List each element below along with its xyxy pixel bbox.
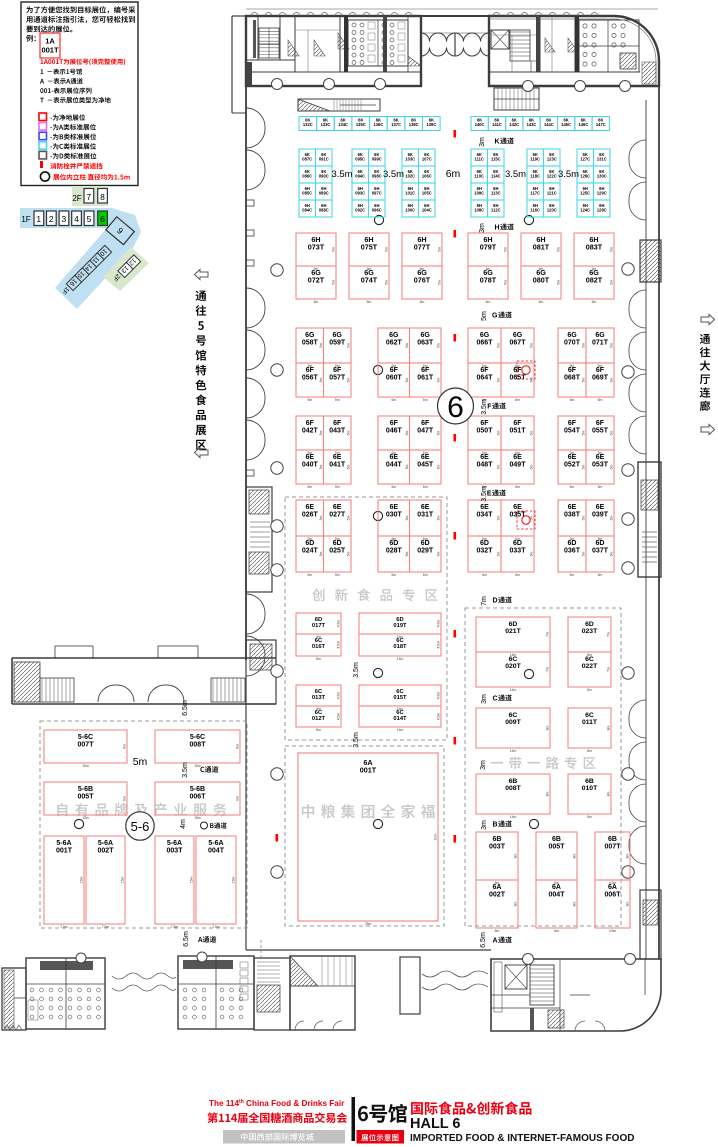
svg-text:7: 7 <box>86 192 91 202</box>
svg-text:6m: 6m <box>420 300 425 304</box>
svg-text:5m: 5m <box>405 515 409 520</box>
svg-text:034T: 034T <box>477 511 494 518</box>
svg-text:6m: 6m <box>446 168 461 180</box>
svg-text:5m: 5m <box>347 551 351 556</box>
svg-text:H: H <box>494 225 499 232</box>
svg-text:105C: 105C <box>422 190 432 195</box>
svg-text:104C: 104C <box>422 207 432 212</box>
svg-text:062T: 062T <box>386 339 403 346</box>
svg-text:118C: 118C <box>530 173 540 178</box>
svg-text:019T: 019T <box>393 623 407 629</box>
svg-text:6D: 6D <box>421 540 430 547</box>
svg-text:5m: 5m <box>610 464 614 469</box>
svg-text:044T: 044T <box>386 461 403 468</box>
svg-text:6E: 6E <box>390 504 399 511</box>
svg-text:092C: 092C <box>355 207 365 212</box>
svg-text:6m: 6m <box>539 267 544 271</box>
svg-text:15m: 15m <box>82 764 89 768</box>
svg-text:3m: 3m <box>481 694 488 704</box>
svg-text:6m: 6m <box>123 796 127 801</box>
svg-text:112C: 112C <box>491 207 501 212</box>
svg-text:6m: 6m <box>482 537 487 541</box>
svg-text:032T: 032T <box>477 547 494 554</box>
svg-text:6m: 6m <box>423 485 428 489</box>
svg-text:6F: 6F <box>421 420 430 427</box>
svg-text:6C: 6C <box>396 710 404 716</box>
svg-text:089C: 089C <box>319 190 329 195</box>
svg-text:108C: 108C <box>474 207 484 212</box>
svg-text:C: C <box>492 696 497 703</box>
svg-text:8m: 8m <box>316 728 321 732</box>
svg-text:6C: 6C <box>585 656 594 663</box>
svg-text:6D: 6D <box>333 540 342 547</box>
svg-text:014T: 014T <box>393 716 407 722</box>
svg-text:4.5m: 4.5m <box>609 929 617 933</box>
svg-text:058T: 058T <box>302 339 319 346</box>
svg-text:6m: 6m <box>515 398 520 402</box>
svg-text:6D: 6D <box>389 540 398 547</box>
svg-text:5m: 5m <box>497 515 501 520</box>
svg-text:6A: 6A <box>552 884 561 891</box>
svg-text:005T: 005T <box>549 843 566 850</box>
svg-text:7.5m: 7.5m <box>102 925 110 929</box>
svg-text:009T: 009T <box>505 719 521 726</box>
svg-text:050T: 050T <box>477 427 494 434</box>
svg-text:1A: 1A <box>45 37 55 46</box>
svg-text:6F: 6F <box>513 420 522 427</box>
svg-text:146C: 146C <box>579 122 589 127</box>
svg-text:14m: 14m <box>397 728 404 732</box>
svg-text:018T: 018T <box>393 644 407 650</box>
svg-text:5m: 5m <box>307 537 312 541</box>
svg-text:057T: 057T <box>329 374 346 381</box>
svg-text:147C: 147C <box>596 122 606 127</box>
svg-text:5m: 5m <box>405 430 409 435</box>
svg-text:6A: 6A <box>493 884 502 891</box>
svg-text:8m: 8m <box>573 901 577 906</box>
svg-text:6F: 6F <box>306 367 315 374</box>
svg-text:119C: 119C <box>530 156 540 161</box>
svg-text:5m: 5m <box>347 343 351 348</box>
svg-text:5m: 5m <box>335 573 340 577</box>
svg-text:4.5m: 4.5m <box>609 881 617 885</box>
svg-text:056T: 056T <box>302 374 319 381</box>
svg-text:6F: 6F <box>333 367 342 374</box>
svg-text:5m: 5m <box>385 280 389 285</box>
svg-text:078T: 078T <box>480 276 497 285</box>
svg-text:5: 5 <box>87 214 92 224</box>
svg-text:6m: 6m <box>314 267 319 271</box>
svg-text:5m: 5m <box>610 430 614 435</box>
svg-text:6F: 6F <box>390 367 399 374</box>
svg-text:5m: 5m <box>405 464 409 469</box>
svg-text:041T: 041T <box>329 461 346 468</box>
svg-text:4.5m: 4.5m <box>337 620 341 628</box>
svg-text:5m: 5m <box>481 311 488 321</box>
svg-text:5m: 5m <box>610 377 614 382</box>
svg-text:6G: 6G <box>480 332 490 339</box>
svg-text:132C: 132C <box>303 122 313 127</box>
svg-text:5m: 5m <box>347 377 351 382</box>
svg-text:5m: 5m <box>570 364 575 368</box>
svg-text:072T: 072T <box>308 276 325 285</box>
svg-text:094C: 094C <box>355 173 365 178</box>
svg-text:3.5m: 3.5m <box>481 486 488 502</box>
svg-text:6B: 6B <box>552 836 561 843</box>
svg-text:025T: 025T <box>329 547 346 554</box>
svg-text:5m: 5m <box>319 430 323 435</box>
svg-text:101C: 101C <box>405 190 415 195</box>
svg-text:6m: 6m <box>391 537 396 541</box>
svg-text:087C: 087C <box>302 156 312 161</box>
svg-text:5-6A: 5-6A <box>167 840 182 847</box>
svg-text:6E: 6E <box>596 454 605 461</box>
svg-text:8m: 8m <box>546 725 550 730</box>
svg-text:008T: 008T <box>505 785 521 792</box>
svg-text:5m: 5m <box>530 343 534 348</box>
svg-text:5m: 5m <box>610 551 614 556</box>
svg-text:5m: 5m <box>504 280 508 285</box>
svg-text:6D: 6D <box>305 540 314 547</box>
svg-text:5m: 5m <box>497 343 501 348</box>
svg-text:8m: 8m <box>316 657 321 661</box>
svg-text:125C: 125C <box>580 190 590 195</box>
svg-text:7m: 7m <box>546 632 550 637</box>
svg-text:5m: 5m <box>332 247 336 252</box>
svg-text:060T: 060T <box>386 374 403 381</box>
svg-text:5m: 5m <box>610 515 614 520</box>
svg-text:5m: 5m <box>437 430 441 435</box>
svg-text:129C: 129C <box>597 190 607 195</box>
svg-text:8m: 8m <box>495 929 500 933</box>
svg-text:6B: 6B <box>608 836 617 843</box>
svg-text:15m: 15m <box>232 877 236 884</box>
svg-text:6D: 6D <box>585 621 594 628</box>
svg-text:15m: 15m <box>80 877 84 884</box>
svg-text:011T: 011T <box>582 719 598 726</box>
svg-text:6E: 6E <box>480 504 489 511</box>
svg-text:5m: 5m <box>598 485 603 489</box>
svg-text:6.5m: 6.5m <box>183 931 190 947</box>
svg-text:6.5m: 6.5m <box>182 700 189 716</box>
svg-text:076T: 076T <box>414 276 431 285</box>
svg-text:109C: 109C <box>474 190 484 195</box>
svg-text:6E: 6E <box>333 454 342 461</box>
svg-text:5m: 5m <box>570 451 575 455</box>
svg-text:5m: 5m <box>332 280 336 285</box>
svg-text:3.5m: 3.5m <box>481 399 488 415</box>
svg-text:6m: 6m <box>423 398 428 402</box>
svg-text:8m: 8m <box>607 725 611 730</box>
svg-text:086C: 086C <box>302 173 312 178</box>
svg-text:5m: 5m <box>557 247 561 252</box>
svg-text:6E: 6E <box>421 454 430 461</box>
svg-text:081T: 081T <box>533 243 550 252</box>
svg-text:069T: 069T <box>592 374 609 381</box>
svg-text:B: B <box>492 822 497 829</box>
svg-text:6m: 6m <box>367 300 372 304</box>
svg-text:048T: 048T <box>477 461 494 468</box>
svg-text:6C: 6C <box>396 689 404 695</box>
svg-text:5m: 5m <box>335 398 340 402</box>
svg-text:14m: 14m <box>510 749 517 753</box>
svg-text:138C: 138C <box>409 122 419 127</box>
svg-text:5m: 5m <box>347 430 351 435</box>
svg-text:013T: 013T <box>312 695 326 701</box>
svg-text:061T: 061T <box>417 374 434 381</box>
svg-text:5-6: 5-6 <box>131 819 150 834</box>
svg-text:8m: 8m <box>626 853 630 858</box>
svg-text:131C: 131C <box>597 156 607 161</box>
svg-text:5m: 5m <box>570 573 575 577</box>
svg-text:5m: 5m <box>504 247 508 252</box>
svg-text:6E: 6E <box>421 504 430 511</box>
svg-text:6m: 6m <box>515 537 520 541</box>
svg-text:145C: 145C <box>561 122 571 127</box>
svg-text:001T: 001T <box>56 847 73 854</box>
svg-text:8m: 8m <box>626 901 630 906</box>
svg-text:012T: 012T <box>312 716 326 722</box>
svg-text:6B: 6B <box>509 778 518 785</box>
svg-text:5m: 5m <box>530 377 534 382</box>
svg-text:4.5m: 4.5m <box>337 641 341 649</box>
svg-text:5m: 5m <box>319 464 323 469</box>
svg-text:054T: 054T <box>564 427 581 434</box>
svg-text:5m: 5m <box>598 364 603 368</box>
svg-text:022T: 022T <box>582 663 598 670</box>
svg-text:14m: 14m <box>397 657 404 661</box>
svg-text:3.5m: 3.5m <box>331 169 352 180</box>
svg-text:6D: 6D <box>596 540 605 547</box>
svg-text:5m: 5m <box>335 364 340 368</box>
svg-text:6m: 6m <box>482 364 487 368</box>
svg-text:6E: 6E <box>390 454 399 461</box>
svg-text:6m: 6m <box>314 300 319 304</box>
svg-text:5m: 5m <box>437 515 441 520</box>
svg-text:030T: 030T <box>386 511 403 518</box>
svg-text:130C: 130C <box>597 173 607 178</box>
svg-text:093C: 093C <box>355 190 365 195</box>
svg-text:5m: 5m <box>610 280 614 285</box>
svg-text:6m: 6m <box>420 267 425 271</box>
svg-text:3m: 3m <box>480 760 487 770</box>
svg-text:15m: 15m <box>82 816 89 820</box>
svg-text:121C: 121C <box>547 190 557 195</box>
svg-text:5m: 5m <box>570 398 575 402</box>
svg-text:038T: 038T <box>564 511 581 518</box>
svg-text:6D: 6D <box>396 617 403 623</box>
svg-text:3.5m: 3.5m <box>353 662 360 678</box>
svg-text:5m: 5m <box>385 247 389 252</box>
svg-text:3.5m: 3.5m <box>182 762 189 778</box>
svg-text:5m: 5m <box>582 464 586 469</box>
svg-text:6G: 6G <box>389 332 399 339</box>
svg-text:5m: 5m <box>437 551 441 556</box>
svg-text:135C: 135C <box>356 122 366 127</box>
svg-text:6m: 6m <box>592 300 597 304</box>
svg-text:5-6B: 5-6B <box>78 786 93 793</box>
svg-text:5m: 5m <box>582 551 586 556</box>
svg-text:5m: 5m <box>307 398 312 402</box>
svg-text:6m: 6m <box>391 573 396 577</box>
svg-text:047T: 047T <box>417 427 434 434</box>
svg-text:6F: 6F <box>390 420 399 427</box>
svg-text:067T: 067T <box>510 339 527 346</box>
svg-text:8m: 8m <box>587 749 592 753</box>
svg-text:023T: 023T <box>582 628 598 635</box>
svg-text:049T: 049T <box>510 461 527 468</box>
svg-text:144C: 144C <box>544 122 554 127</box>
svg-text:045T: 045T <box>417 461 434 468</box>
svg-text:016T: 016T <box>312 644 326 650</box>
svg-text:040T: 040T <box>302 461 319 468</box>
svg-text:The 114th China Food & Drinks: The 114th China Food & Drinks Fair <box>209 1099 345 1108</box>
svg-text:120C: 120C <box>547 207 557 212</box>
svg-text:037T: 037T <box>592 547 609 554</box>
svg-text:075T: 075T <box>361 243 378 252</box>
svg-text:D: D <box>492 598 497 605</box>
svg-text:114C: 114C <box>491 173 501 178</box>
svg-text:7m: 7m <box>607 632 611 637</box>
svg-text:5m: 5m <box>307 364 312 368</box>
svg-text:002T: 002T <box>98 847 115 854</box>
svg-text:095C: 095C <box>355 156 365 161</box>
svg-text:7m: 7m <box>546 667 550 672</box>
svg-text:5-6C: 5-6C <box>78 734 93 741</box>
svg-text:6m: 6m <box>515 573 520 577</box>
svg-text:003T: 003T <box>489 843 506 850</box>
svg-text:097C: 097C <box>372 190 382 195</box>
svg-text:083T: 083T <box>586 243 603 252</box>
svg-text:3.5m: 3.5m <box>558 169 579 180</box>
svg-text:5m: 5m <box>307 573 312 577</box>
svg-text:143C: 143C <box>527 122 537 127</box>
svg-text:8m: 8m <box>495 881 500 885</box>
svg-text:6C: 6C <box>509 656 518 663</box>
svg-text:6G: 6G <box>305 332 315 339</box>
svg-text:6C: 6C <box>396 638 404 644</box>
svg-text:5m: 5m <box>497 551 501 556</box>
svg-text:K: K <box>494 139 499 146</box>
svg-text:8m: 8m <box>607 791 611 796</box>
svg-text:25m: 25m <box>365 922 372 926</box>
svg-text:7m: 7m <box>607 667 611 672</box>
svg-text:8: 8 <box>100 192 105 202</box>
svg-text:2: 2 <box>49 214 54 224</box>
svg-text:059T: 059T <box>329 339 346 346</box>
svg-text:136C: 136C <box>374 122 384 127</box>
svg-text:5m: 5m <box>610 343 614 348</box>
svg-text:004T: 004T <box>549 891 566 898</box>
svg-text:080T: 080T <box>533 276 550 285</box>
svg-text:6E: 6E <box>480 454 489 461</box>
svg-text:6m: 6m <box>482 573 487 577</box>
svg-text:3.5m: 3.5m <box>383 169 404 180</box>
svg-text:3.5m: 3.5m <box>505 169 526 180</box>
svg-text:4.5m: 4.5m <box>437 713 441 721</box>
svg-text:036T: 036T <box>564 547 581 554</box>
svg-text:5m: 5m <box>557 280 561 285</box>
svg-text:5m: 5m <box>319 377 323 382</box>
svg-text:6.5m: 6.5m <box>480 932 487 948</box>
svg-text:134C: 134C <box>338 122 348 127</box>
svg-text:5m: 5m <box>307 485 312 489</box>
svg-text:035T: 035T <box>510 511 527 518</box>
svg-text:6: 6 <box>447 391 464 424</box>
svg-text:6F: 6F <box>480 420 489 427</box>
svg-text:027T: 027T <box>329 511 346 518</box>
svg-text:123C: 123C <box>547 156 557 161</box>
svg-text:004T: 004T <box>208 847 225 854</box>
svg-text:5m: 5m <box>497 430 501 435</box>
svg-text:6m: 6m <box>554 929 559 933</box>
svg-text:8m: 8m <box>587 688 592 692</box>
svg-text:6m: 6m <box>391 364 396 368</box>
svg-text:6C: 6C <box>315 689 323 695</box>
svg-text:3m: 3m <box>481 820 488 830</box>
svg-text:6D: 6D <box>509 621 518 628</box>
svg-text:6: 6 <box>100 214 105 224</box>
svg-text:4.5m: 4.5m <box>437 692 441 700</box>
svg-text:140C: 140C <box>475 122 485 127</box>
svg-text:002T: 002T <box>489 891 506 898</box>
svg-text:001T: 001T <box>360 766 377 775</box>
svg-text:065T: 065T <box>510 374 527 381</box>
svg-text:3: 3 <box>62 214 67 224</box>
svg-text:IMPORTED FOOD & INTERNET-FAMOU: IMPORTED FOOD & INTERNET-FAMOUS FOOD <box>410 1133 634 1144</box>
svg-text:15m: 15m <box>121 877 125 884</box>
svg-text:103C: 103C <box>405 156 415 161</box>
svg-text:055T: 055T <box>592 427 609 434</box>
svg-text:5m: 5m <box>335 537 340 541</box>
svg-text:HALL 6: HALL 6 <box>410 1116 461 1132</box>
svg-text:142C: 142C <box>509 122 519 127</box>
svg-text:6m: 6m <box>539 300 544 304</box>
svg-text:084C: 084C <box>302 207 312 212</box>
svg-text:1F: 1F <box>21 215 30 224</box>
svg-text:6C: 6C <box>315 638 323 644</box>
svg-text:052T: 052T <box>564 461 581 468</box>
svg-text:6G: 6G <box>421 332 431 339</box>
svg-text:3m: 3m <box>479 137 486 147</box>
svg-text:8m: 8m <box>514 901 518 906</box>
svg-text:006T: 006T <box>605 891 622 898</box>
svg-text:4.5m: 4.5m <box>337 713 341 721</box>
svg-text:6F: 6F <box>596 367 605 374</box>
svg-text:15m: 15m <box>194 816 201 820</box>
svg-text:5m: 5m <box>319 551 323 556</box>
svg-text:5m: 5m <box>582 377 586 382</box>
svg-text:6G: 6G <box>595 332 605 339</box>
svg-text:6m: 6m <box>515 485 520 489</box>
svg-text:6F: 6F <box>306 420 315 427</box>
svg-text:7.5m: 7.5m <box>60 925 68 929</box>
svg-text:5m: 5m <box>437 377 441 382</box>
svg-text:6G: 6G <box>567 332 577 339</box>
svg-text:4.5m: 4.5m <box>437 641 441 649</box>
svg-text:4.5m: 4.5m <box>337 692 341 700</box>
svg-text:3.5m: 3.5m <box>353 732 360 748</box>
svg-text:5-6B: 5-6B <box>190 786 205 793</box>
svg-text:5m: 5m <box>530 430 534 435</box>
svg-text:4: 4 <box>74 214 79 224</box>
svg-text:124C: 124C <box>580 207 590 212</box>
svg-text:5m: 5m <box>570 537 575 541</box>
svg-text:020T: 020T <box>505 663 521 670</box>
svg-text:6B: 6B <box>585 778 594 785</box>
svg-text:115C: 115C <box>491 156 501 161</box>
svg-text:6m: 6m <box>423 537 428 541</box>
